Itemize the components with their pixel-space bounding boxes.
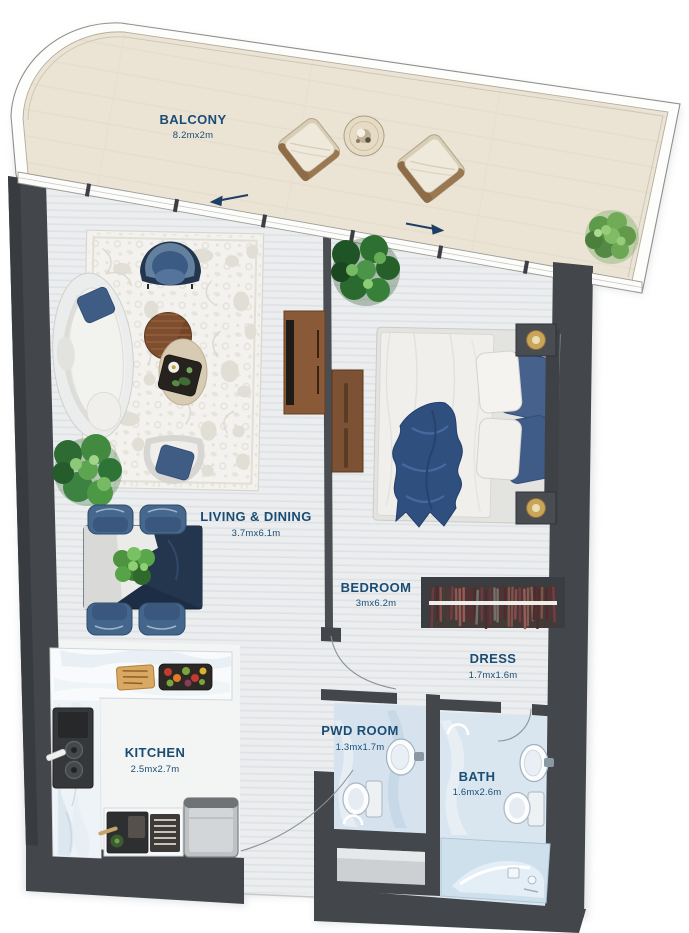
svg-text:3.7mx6.1m: 3.7mx6.1m: [232, 528, 281, 539]
svg-text:1.3mx1.7m: 1.3mx1.7m: [336, 742, 385, 753]
svg-text:BEDROOM: BEDROOM: [341, 580, 412, 595]
svg-text:8.2mx2m: 8.2mx2m: [173, 130, 213, 141]
svg-text:3mx6.2m: 3mx6.2m: [356, 598, 396, 609]
svg-text:BALCONY: BALCONY: [159, 112, 226, 127]
svg-text:LIVING & DINING: LIVING & DINING: [200, 509, 311, 524]
svg-text:KITCHEN: KITCHEN: [125, 745, 186, 760]
svg-text:DRESS: DRESS: [470, 651, 517, 666]
svg-text:PWD ROOM: PWD ROOM: [321, 723, 399, 738]
svg-text:2.5mx2.7m: 2.5mx2.7m: [131, 764, 180, 775]
svg-text:1.6mx2.6m: 1.6mx2.6m: [453, 787, 502, 798]
svg-text:BATH: BATH: [459, 769, 496, 784]
svg-text:1.7mx1.6m: 1.7mx1.6m: [469, 670, 518, 681]
